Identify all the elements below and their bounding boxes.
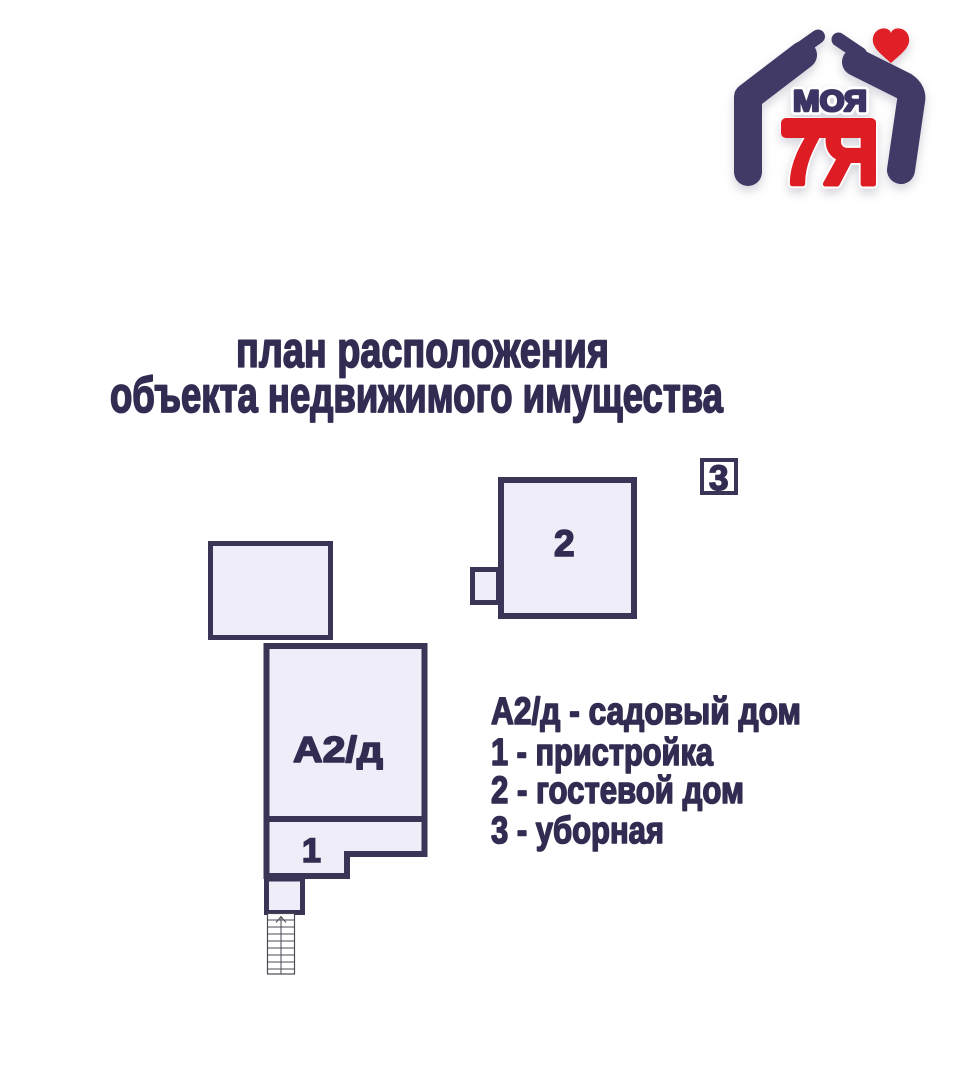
- svg-text:А2/д - садовый дом: А2/д - садовый дом: [491, 691, 801, 733]
- svg-text:2 - гостевой дом: 2 - гостевой дом: [491, 770, 744, 812]
- svg-text:1 - пристройка: 1 - пристройка: [491, 732, 714, 774]
- svg-text:3 - уборная: 3 - уборная: [491, 810, 664, 852]
- svg-text:2: 2: [554, 523, 575, 564]
- svg-text:А2/д: А2/д: [293, 729, 383, 770]
- svg-text:3: 3: [709, 459, 728, 498]
- svg-text:1: 1: [302, 832, 321, 870]
- svg-text:объекта недвижимого имущества: объекта недвижимого имущества: [110, 367, 724, 423]
